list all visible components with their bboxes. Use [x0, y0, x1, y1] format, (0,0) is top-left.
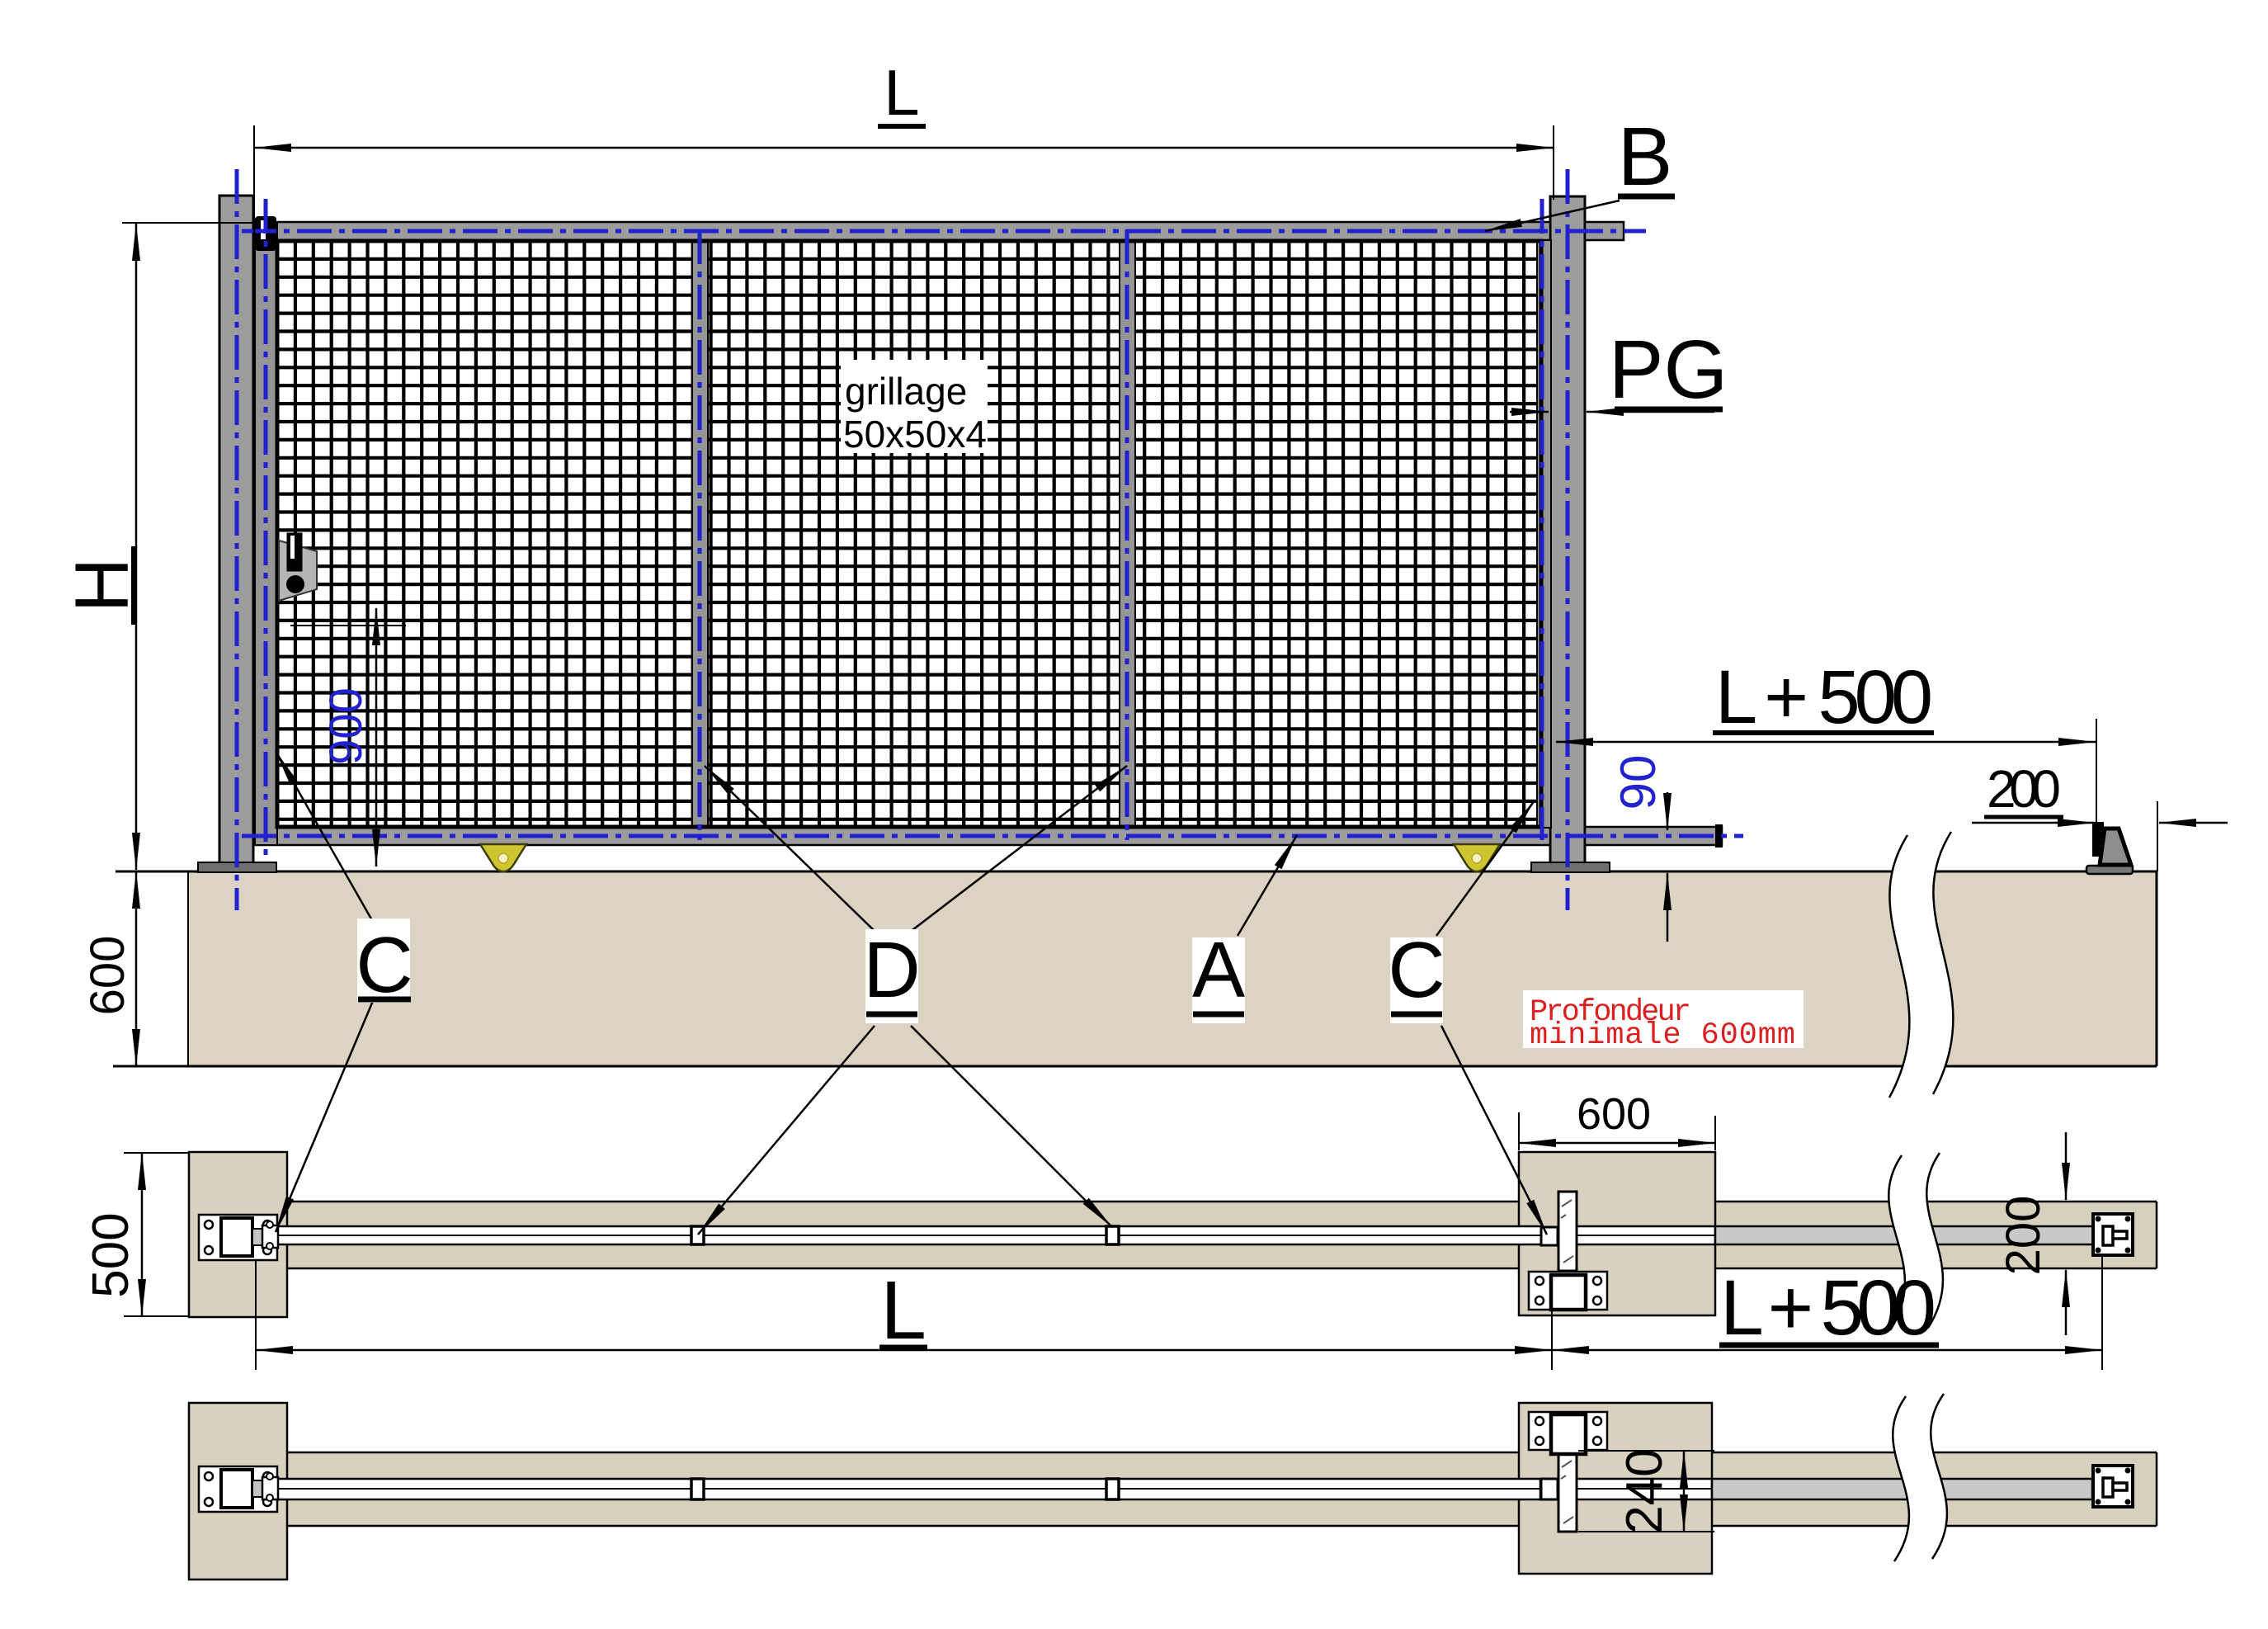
svg-text:600: 600	[1577, 1089, 1651, 1139]
svg-text:900: 900	[319, 687, 371, 764]
svg-text:240: 240	[1616, 1448, 1673, 1533]
svg-text:L + 500: L + 500	[1720, 1264, 1936, 1352]
svg-text:L: L	[880, 1264, 927, 1357]
svg-text:B: B	[1618, 111, 1673, 203]
svg-text:600: 600	[81, 936, 134, 1016]
svg-text:200: 200	[1987, 759, 2061, 819]
svg-text:200: 200	[1997, 1196, 2050, 1276]
svg-text:L: L	[884, 56, 919, 129]
svg-text:A: A	[1192, 926, 1245, 1014]
svg-text:50x50x4: 50x50x4	[843, 413, 987, 456]
svg-text:minimale 600mm: minimale 600mm	[1530, 1018, 1795, 1053]
svg-text:500: 500	[83, 1212, 139, 1297]
svg-text:C: C	[1388, 926, 1445, 1014]
svg-text:90: 90	[1610, 755, 1666, 810]
svg-text:D: D	[863, 926, 920, 1014]
svg-text:PG: PG	[1609, 323, 1728, 416]
svg-text:grillage: grillage	[845, 370, 967, 413]
svg-text:C: C	[356, 921, 413, 1009]
svg-text:L + 500: L + 500	[1715, 655, 1933, 739]
